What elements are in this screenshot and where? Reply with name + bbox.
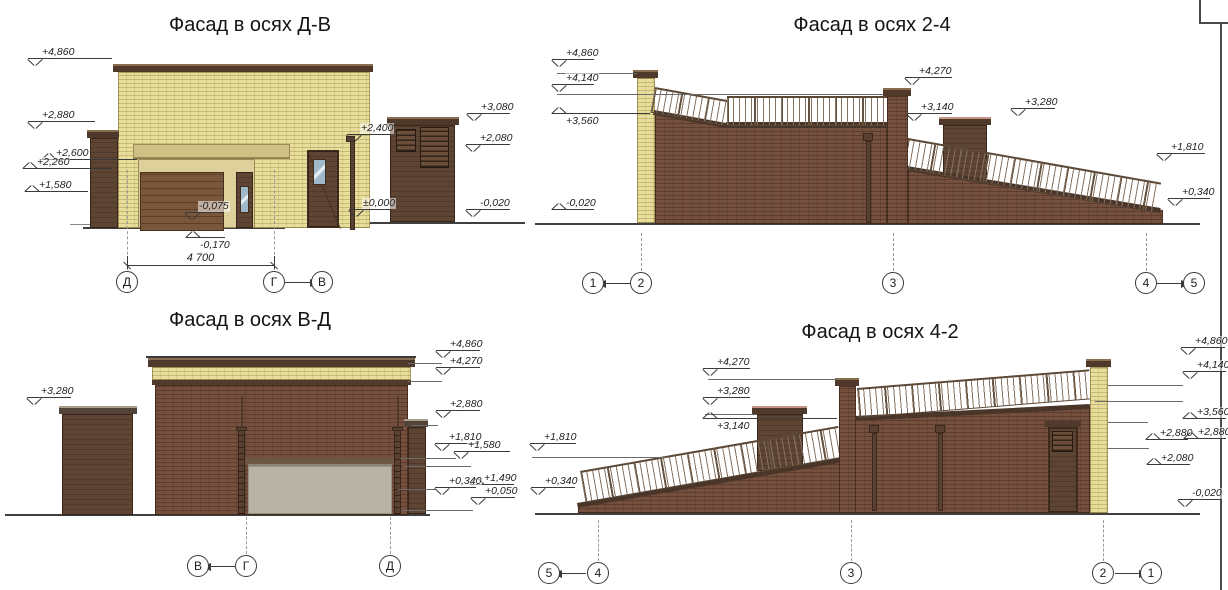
elevation-arrow-icon: [1157, 154, 1171, 163]
axis-dashed-line: [1146, 233, 1147, 271]
elevation-arrow-icon: [1178, 500, 1192, 509]
elevation-value: -0,020: [565, 198, 597, 209]
axis-dashed-line: [598, 520, 599, 561]
axis-bubble-2: 2: [1092, 562, 1114, 584]
annotations-layer: Фасад в осях Д-В+4,860+2,880+2,600+2,260…: [0, 0, 1228, 590]
elevation-value: +2,080: [479, 133, 513, 144]
elevation-mark: +3,140: [907, 113, 952, 114]
elevation-mark: +2,260: [23, 168, 112, 169]
elevation-mark: +3,140: [703, 418, 837, 419]
elevation-arrow-icon: [347, 135, 361, 144]
elevation-arrow-icon: [23, 160, 37, 169]
elevation-mark: +3,560: [552, 113, 650, 114]
elevation-mark: +2,080: [466, 144, 510, 145]
elevation-mark: ±0,000: [349, 209, 390, 210]
elevation-arrow-icon: [436, 411, 450, 420]
elevation-arrow-icon: [552, 105, 566, 114]
elevation-mark: +3,560: [1183, 418, 1226, 419]
elevation-value: +2,080: [1160, 453, 1194, 464]
elevation-arrow-icon: [1146, 431, 1160, 440]
elevation-mark: +3,280: [703, 397, 750, 398]
elevation-value: -0,170: [199, 240, 231, 251]
elevation-mark: +2,880: [28, 121, 95, 122]
elevation-mark: -0,075: [185, 212, 223, 213]
elevation-mark: +0,340: [1168, 198, 1210, 199]
elevation-mark: +0,340: [435, 487, 476, 488]
elevation-value: +1,810: [1170, 142, 1204, 153]
axis-link-arrow: [605, 283, 630, 284]
elevation-arrow-icon: [530, 444, 544, 453]
axis-dashed-line: [246, 517, 247, 554]
elevation-mark: -0,170: [186, 237, 225, 238]
axis-bubble-Г: Г: [235, 555, 257, 577]
elevation-arrow-icon: [28, 122, 42, 131]
level-line: [408, 363, 442, 364]
axis-bubble-1: 1: [582, 272, 604, 294]
elevation-arrow-icon: [25, 183, 39, 192]
elevation-mark: -0,020: [552, 209, 594, 210]
elevation-value: +3,280: [1024, 97, 1058, 108]
axis-dashed-line: [1103, 520, 1104, 561]
axis-bubble-Г: Г: [263, 271, 285, 293]
elevation-mark: +4,270: [703, 368, 750, 369]
axis-bubble-4: 4: [1135, 272, 1157, 294]
elevation-arrow-icon: [28, 59, 42, 68]
elevation-mark: +3,280: [1011, 108, 1055, 109]
elevation-arrow-icon: [703, 410, 717, 419]
elevation-value: +2,400: [360, 123, 394, 134]
level-line: [402, 510, 473, 511]
axis-bubble-Д: Д: [116, 271, 138, 293]
elevation-value: +4,270: [716, 357, 750, 368]
elevation-mark: +2,880: [1146, 439, 1188, 440]
elevation-arrow-icon: [703, 369, 717, 378]
elevation-arrow-icon: [1181, 348, 1195, 357]
panel-title: Фасад в осях Д-В: [169, 14, 331, 37]
elevation-mark: -0,020: [1178, 499, 1222, 500]
elevation-value: +4,860: [565, 48, 599, 59]
elevation-arrow-icon: [552, 85, 566, 94]
elevation-value: +2,880: [1197, 427, 1228, 438]
level-line: [557, 94, 883, 95]
elevation-value: +4,270: [449, 356, 483, 367]
elevation-value: +4,860: [41, 47, 75, 58]
axis-link-arrow: [561, 573, 586, 574]
elevation-arrow-icon: [531, 488, 545, 497]
elevation-arrow-icon: [1147, 456, 1161, 465]
level-line: [408, 381, 442, 382]
elevation-value: +3,560: [1196, 407, 1228, 418]
elevation-value: +4,860: [1194, 336, 1228, 347]
axis-bubble-В: В: [187, 555, 209, 577]
elevation-value: +4,860: [449, 339, 483, 350]
elevation-mark: +4,860: [552, 59, 594, 60]
elevation-mark: +2,400: [347, 134, 390, 135]
axis-bubble-3: 3: [882, 272, 904, 294]
elevation-value: +0,340: [448, 476, 482, 487]
panel-title: Фасад в осях В-Д: [169, 309, 331, 332]
elevation-value: +1,490: [483, 473, 517, 484]
elevation-value: +1,810: [543, 432, 577, 443]
elevation-value: +4,270: [918, 66, 952, 77]
level-line: [708, 379, 838, 380]
axis-dashed-line: [274, 170, 275, 270]
axis-dashed-line: [641, 233, 642, 271]
extension-line: [274, 256, 275, 269]
panel-title: Фасад в осях 4-2: [801, 321, 958, 344]
axis-link-arrow: [210, 566, 235, 567]
elevation-mark: +1,580: [25, 191, 88, 192]
axis-bubble-1: 1: [1140, 562, 1162, 584]
axis-bubble-5: 5: [1183, 272, 1205, 294]
axis-link-arrow: [285, 282, 311, 283]
elevation-value: +1,580: [38, 180, 72, 191]
elevation-value: +0,340: [544, 476, 578, 487]
elevation-arrow-icon: [454, 452, 468, 461]
elevation-value: +0,050: [484, 486, 518, 497]
axis-bubble-Д: Д: [379, 555, 401, 577]
axis-bubble-3: 3: [840, 562, 862, 584]
elevation-arrow-icon: [552, 201, 566, 210]
elevation-mark: +3,280: [27, 397, 71, 398]
dimension-value: 4 700: [187, 252, 215, 264]
level-line: [1108, 422, 1148, 423]
elevation-arrow-icon: [905, 78, 919, 87]
axis-link-arrow: [1115, 573, 1140, 574]
elevation-mark: +4,860: [436, 350, 480, 351]
elevation-arrow-icon: [467, 114, 481, 123]
elevation-mark: +4,860: [28, 58, 112, 59]
dimension-line: 4 700: [127, 265, 274, 266]
elevation-arrow-icon: [435, 488, 449, 497]
elevation-mark: +2,080: [1147, 464, 1190, 465]
elevation-value: +3,280: [716, 386, 750, 397]
level-line: [412, 425, 438, 426]
level-line: [400, 458, 456, 459]
elevation-value: +3,140: [716, 421, 750, 432]
elevation-mark: +4,270: [436, 367, 480, 368]
elevation-value: +1,580: [467, 440, 501, 451]
elevation-mark: +1,580: [454, 451, 510, 452]
elevation-mark: +4,140: [552, 84, 594, 85]
elevation-value: +4,140: [565, 73, 599, 84]
elevation-arrow-icon: [435, 444, 449, 453]
axis-bubble-4: 4: [587, 562, 609, 584]
level-line: [1108, 385, 1183, 386]
elevation-value: +2,260: [36, 157, 70, 168]
axis-link-arrow: [1157, 283, 1182, 284]
elevation-arrow-icon: [466, 145, 480, 154]
elevation-arrow-icon: [27, 398, 41, 407]
elevation-value: ±0,000: [362, 198, 396, 209]
axis-bubble-2: 2: [630, 272, 652, 294]
elevation-arrow-icon: [1184, 430, 1198, 439]
elevation-value: +3,560: [565, 116, 599, 127]
elevation-mark: +1,810: [1157, 153, 1205, 154]
elevation-mark: +2,880: [1184, 438, 1226, 439]
elevation-value: -0,020: [479, 198, 511, 209]
elevation-value: -0,075: [198, 201, 230, 212]
elevation-value: +4,140: [1196, 360, 1228, 371]
level-line: [404, 466, 471, 467]
elevation-mark: +4,270: [905, 77, 952, 78]
axis-bubble-5: 5: [538, 562, 560, 584]
elevation-arrow-icon: [186, 229, 200, 238]
elevation-arrow-icon: [471, 498, 485, 507]
elevation-arrow-icon: [185, 213, 199, 222]
axis-dashed-line: [851, 520, 852, 561]
elevation-arrow-icon: [436, 351, 450, 360]
axis-dashed-line: [893, 233, 894, 271]
axis-dashed-line: [127, 170, 128, 270]
elevation-mark: +4,860: [1181, 347, 1225, 348]
elevation-arrow-icon: [1168, 199, 1182, 208]
elevation-arrow-icon: [466, 210, 480, 219]
elevation-value: +3,080: [480, 102, 514, 113]
elevation-value: +2,880: [449, 399, 483, 410]
level-line: [532, 457, 667, 458]
elevation-value: +3,280: [40, 386, 74, 397]
elevation-arrow-icon: [552, 60, 566, 69]
elevation-mark: +2,880: [436, 410, 480, 411]
elevation-mark: -0,020: [466, 209, 510, 210]
elevation-mark: +4,140: [1183, 371, 1226, 372]
drawing-sheet: Фасад в осях Д-В+4,860+2,880+2,600+2,260…: [0, 0, 1228, 590]
panel-title: Фасад в осях 2-4: [793, 14, 950, 37]
elevation-arrow-icon: [907, 114, 921, 123]
level-line: [1095, 401, 1183, 402]
elevation-value: -0,020: [1191, 488, 1223, 499]
elevation-value: +2,880: [41, 110, 75, 121]
elevation-arrow-icon: [1183, 372, 1197, 381]
axis-bubble-В: В: [311, 271, 333, 293]
elevation-arrow-icon: [349, 210, 363, 219]
elevation-value: +0,340: [1181, 187, 1215, 198]
elevation-mark: +1,810: [530, 443, 576, 444]
elevation-arrow-icon: [703, 398, 717, 407]
level-line: [1108, 448, 1149, 449]
elevation-arrow-icon: [436, 368, 450, 377]
elevation-mark: +0,050: [471, 497, 515, 498]
level-line: [398, 489, 436, 490]
extension-line: [127, 256, 128, 269]
axis-dashed-line: [390, 517, 391, 554]
elevation-mark: +3,080: [467, 113, 510, 114]
elevation-value: +3,140: [920, 102, 954, 113]
elevation-mark: +0,340: [531, 487, 575, 488]
elevation-arrow-icon: [1183, 410, 1197, 419]
elevation-arrow-icon: [1011, 109, 1025, 118]
